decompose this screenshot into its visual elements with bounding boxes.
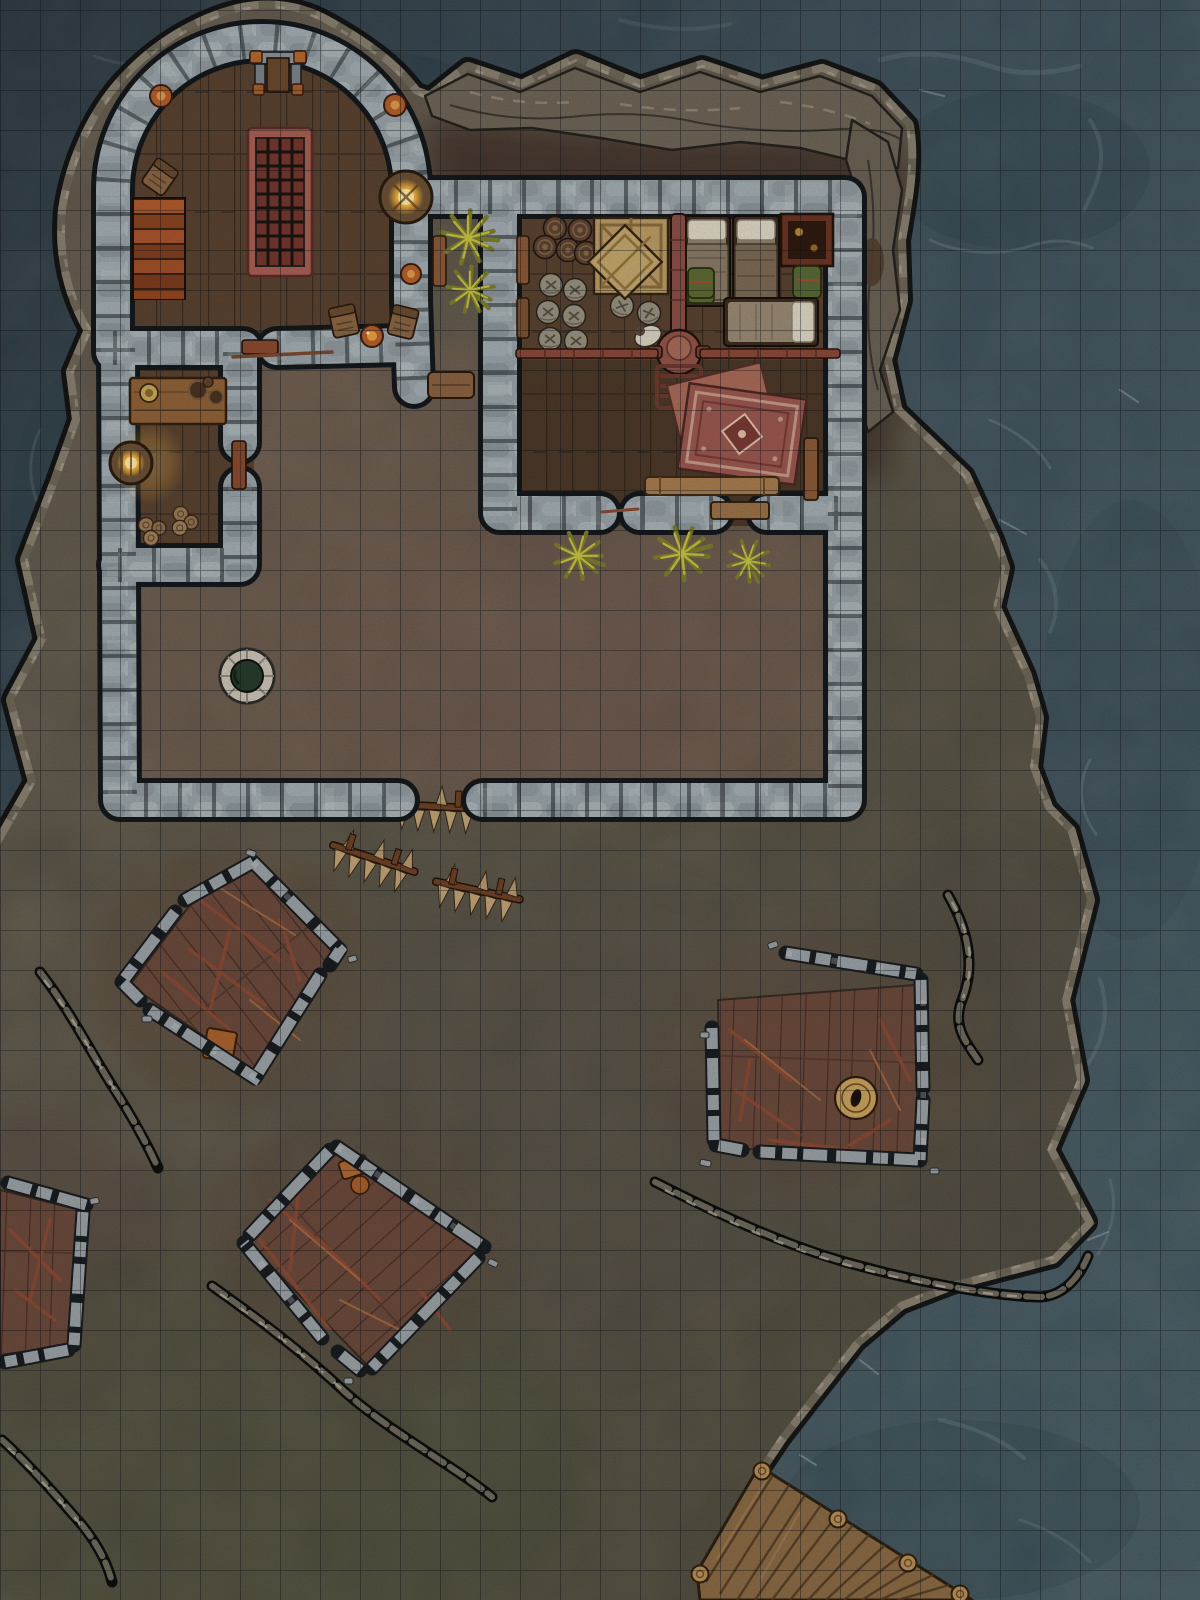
battle-map-canvas (0, 0, 1200, 1600)
battle-map-page (0, 0, 1200, 1600)
grid-overlay (0, 0, 1200, 1600)
